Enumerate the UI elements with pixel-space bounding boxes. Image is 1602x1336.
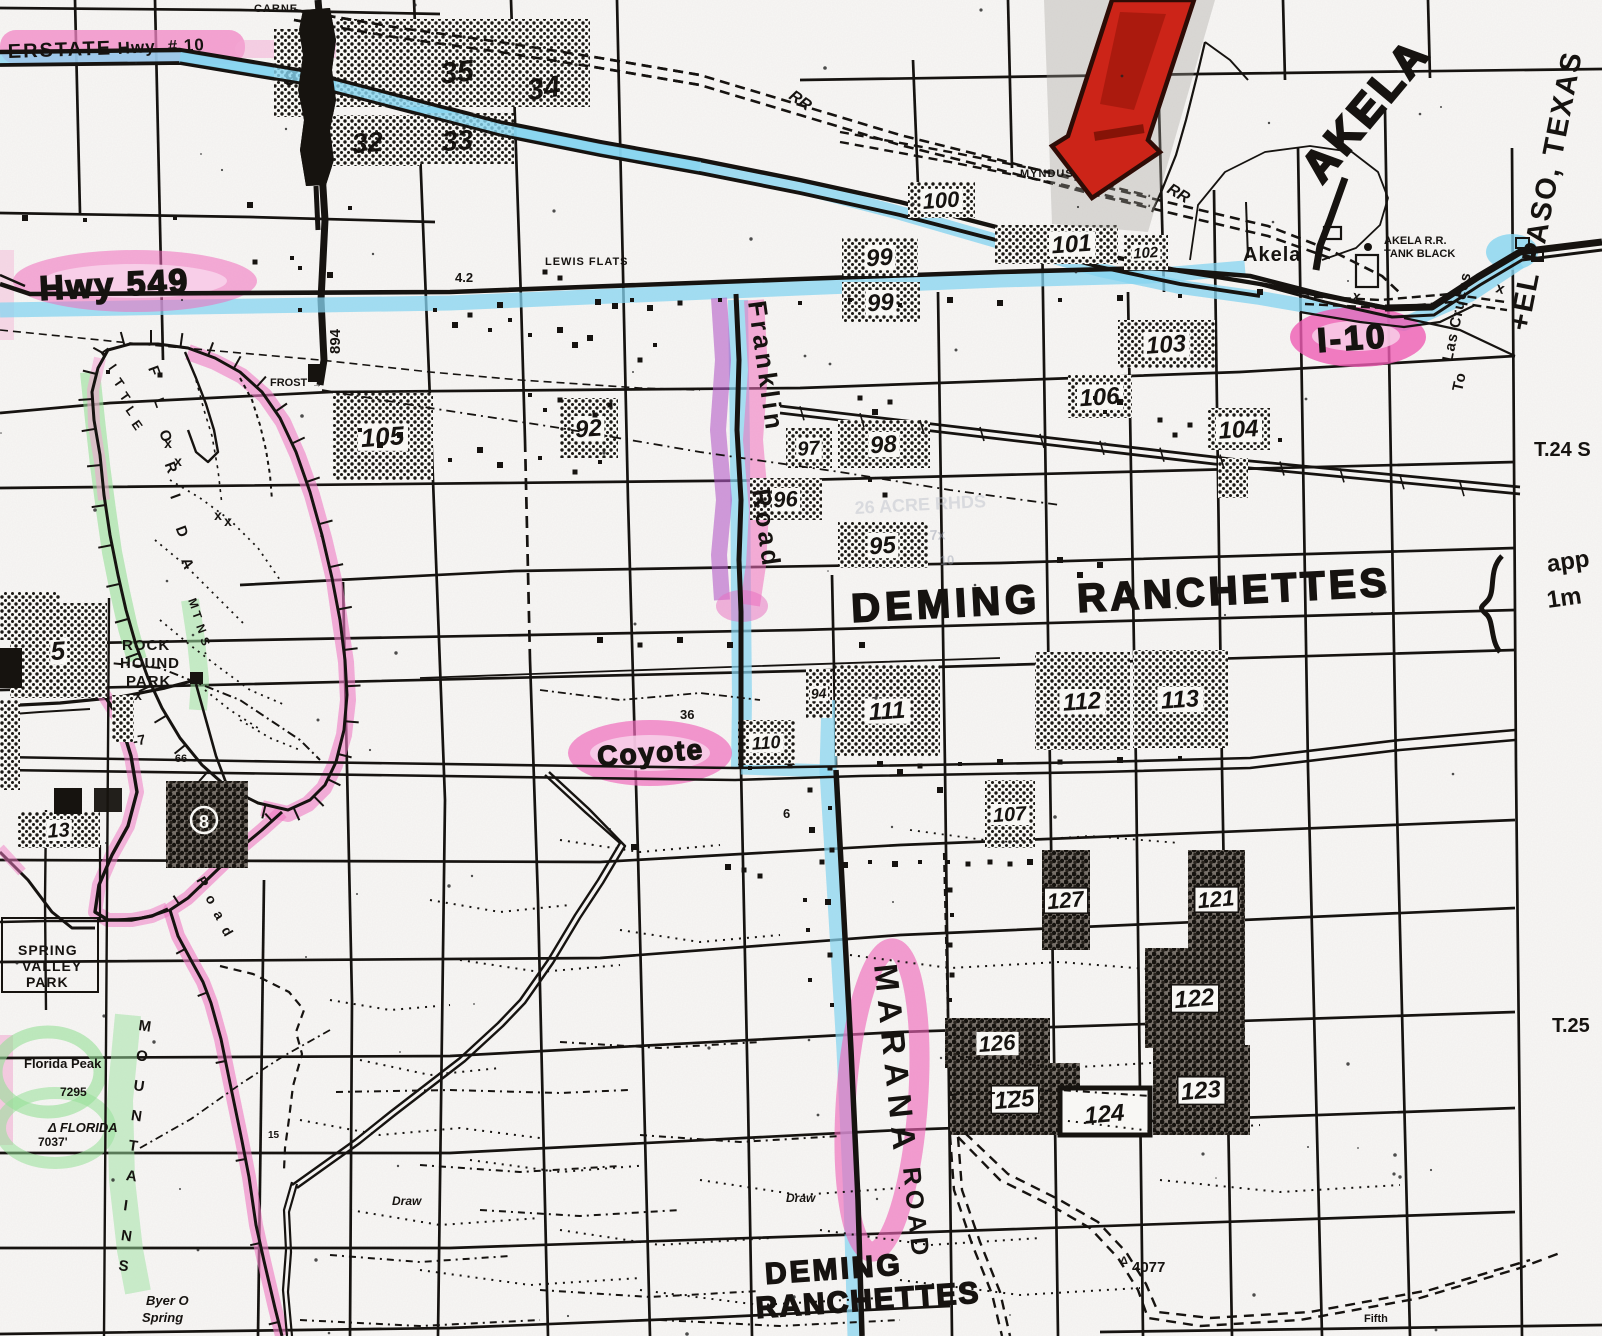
- svg-text:10: 10: [939, 552, 954, 568]
- svg-text:99: 99: [866, 288, 895, 317]
- svg-text:TANK BLACK: TANK BLACK: [1384, 248, 1455, 260]
- svg-text:LEWIS FLATS: LEWIS FLATS: [545, 256, 629, 268]
- svg-text:106: 106: [1079, 383, 1121, 413]
- svg-text:122: 122: [1173, 984, 1216, 1014]
- svg-text:→: →: [312, 379, 322, 390]
- svg-text:MYNDUS: MYNDUS: [1020, 168, 1074, 180]
- svg-text:ROCK: ROCK: [122, 637, 170, 654]
- svg-text:PARK: PARK: [26, 974, 69, 990]
- svg-text:97: 97: [797, 437, 822, 461]
- svg-text:103: 103: [1145, 330, 1187, 360]
- svg-text:121: 121: [1196, 885, 1235, 913]
- svg-text:FROST: FROST: [270, 377, 308, 389]
- svg-text:124: 124: [1083, 1099, 1125, 1129]
- svg-text:7x: 7x: [929, 526, 946, 543]
- svg-text:104: 104: [1218, 415, 1260, 445]
- svg-text:Spring: Spring: [142, 1310, 183, 1325]
- svg-text:Draw: Draw: [392, 1194, 422, 1208]
- svg-text:CARNE: CARNE: [254, 3, 298, 15]
- svg-text:I-10: I-10: [1316, 317, 1389, 360]
- svg-text:T.24 S: T.24 S: [1534, 439, 1591, 461]
- svg-text:VALLEY: VALLEY: [22, 958, 82, 974]
- svg-text:101: 101: [1051, 230, 1093, 260]
- svg-text:112: 112: [1062, 687, 1103, 717]
- svg-text:32: 32: [351, 126, 385, 159]
- svg-text:6: 6: [783, 806, 790, 821]
- svg-text:M: M: [137, 1017, 152, 1036]
- svg-text:8: 8: [199, 812, 209, 832]
- svg-text:Byer O: Byer O: [146, 1293, 189, 1308]
- svg-text:110: 110: [751, 732, 781, 754]
- svg-text:Hwy 549: Hwy 549: [38, 262, 190, 308]
- svg-text:98: 98: [869, 430, 898, 459]
- svg-text:SPRING: SPRING: [18, 942, 78, 958]
- svg-text:Akela: Akela: [1243, 244, 1301, 266]
- svg-text:ERSTATE: ERSTATE: [7, 37, 112, 63]
- svg-text:T.25: T.25: [1552, 1015, 1590, 1037]
- svg-text:Draw: Draw: [786, 1191, 816, 1205]
- svg-text:36: 36: [680, 707, 694, 722]
- svg-text:100: 100: [922, 186, 961, 214]
- svg-text:94: 94: [810, 685, 827, 702]
- svg-text:33: 33: [441, 124, 475, 157]
- svg-text:34: 34: [525, 70, 563, 107]
- svg-text:99: 99: [865, 243, 894, 272]
- svg-text:Florida Peak: Florida Peak: [24, 1056, 102, 1071]
- svg-text:Hwy: Hwy: [117, 37, 156, 58]
- svg-text:15: 15: [268, 1130, 280, 1141]
- svg-text:111: 111: [868, 697, 906, 726]
- svg-text:4077: 4077: [1132, 1259, 1165, 1276]
- svg-text:# 10: # 10: [167, 35, 205, 56]
- svg-text:4.2: 4.2: [455, 270, 473, 285]
- svg-text:Δ FLORIDA: Δ FLORIDA: [47, 1120, 118, 1135]
- svg-text:102: 102: [1133, 244, 1160, 263]
- svg-text:HOUND: HOUND: [120, 655, 180, 672]
- svg-text:95: 95: [868, 531, 897, 560]
- svg-text:Δ: Δ: [1120, 1255, 1128, 1267]
- svg-text:66: 66: [175, 753, 187, 765]
- svg-text:127: 127: [1046, 886, 1087, 914]
- svg-text:125: 125: [993, 1085, 1036, 1115]
- svg-text:123: 123: [1180, 1076, 1223, 1106]
- svg-text:92: 92: [574, 414, 603, 443]
- svg-text:35: 35: [439, 54, 477, 90]
- svg-text:1m: 1m: [1545, 582, 1583, 614]
- svg-text:13: 13: [47, 819, 71, 842]
- svg-text:AKELA R.R.: AKELA R.R.: [1384, 235, 1447, 247]
- svg-text:Fifth: Fifth: [1364, 1313, 1388, 1325]
- svg-text:x: x: [214, 507, 222, 523]
- svg-text:PARK: PARK: [126, 673, 171, 690]
- svg-text:113: 113: [1160, 685, 1201, 715]
- svg-text:x: x: [224, 513, 232, 529]
- svg-text:7295: 7295: [60, 1085, 87, 1099]
- svg-text:107: 107: [992, 803, 1028, 827]
- svg-text:126: 126: [978, 1029, 1017, 1057]
- svg-text:7037': 7037': [38, 1135, 68, 1149]
- svg-text:894: 894: [327, 328, 344, 354]
